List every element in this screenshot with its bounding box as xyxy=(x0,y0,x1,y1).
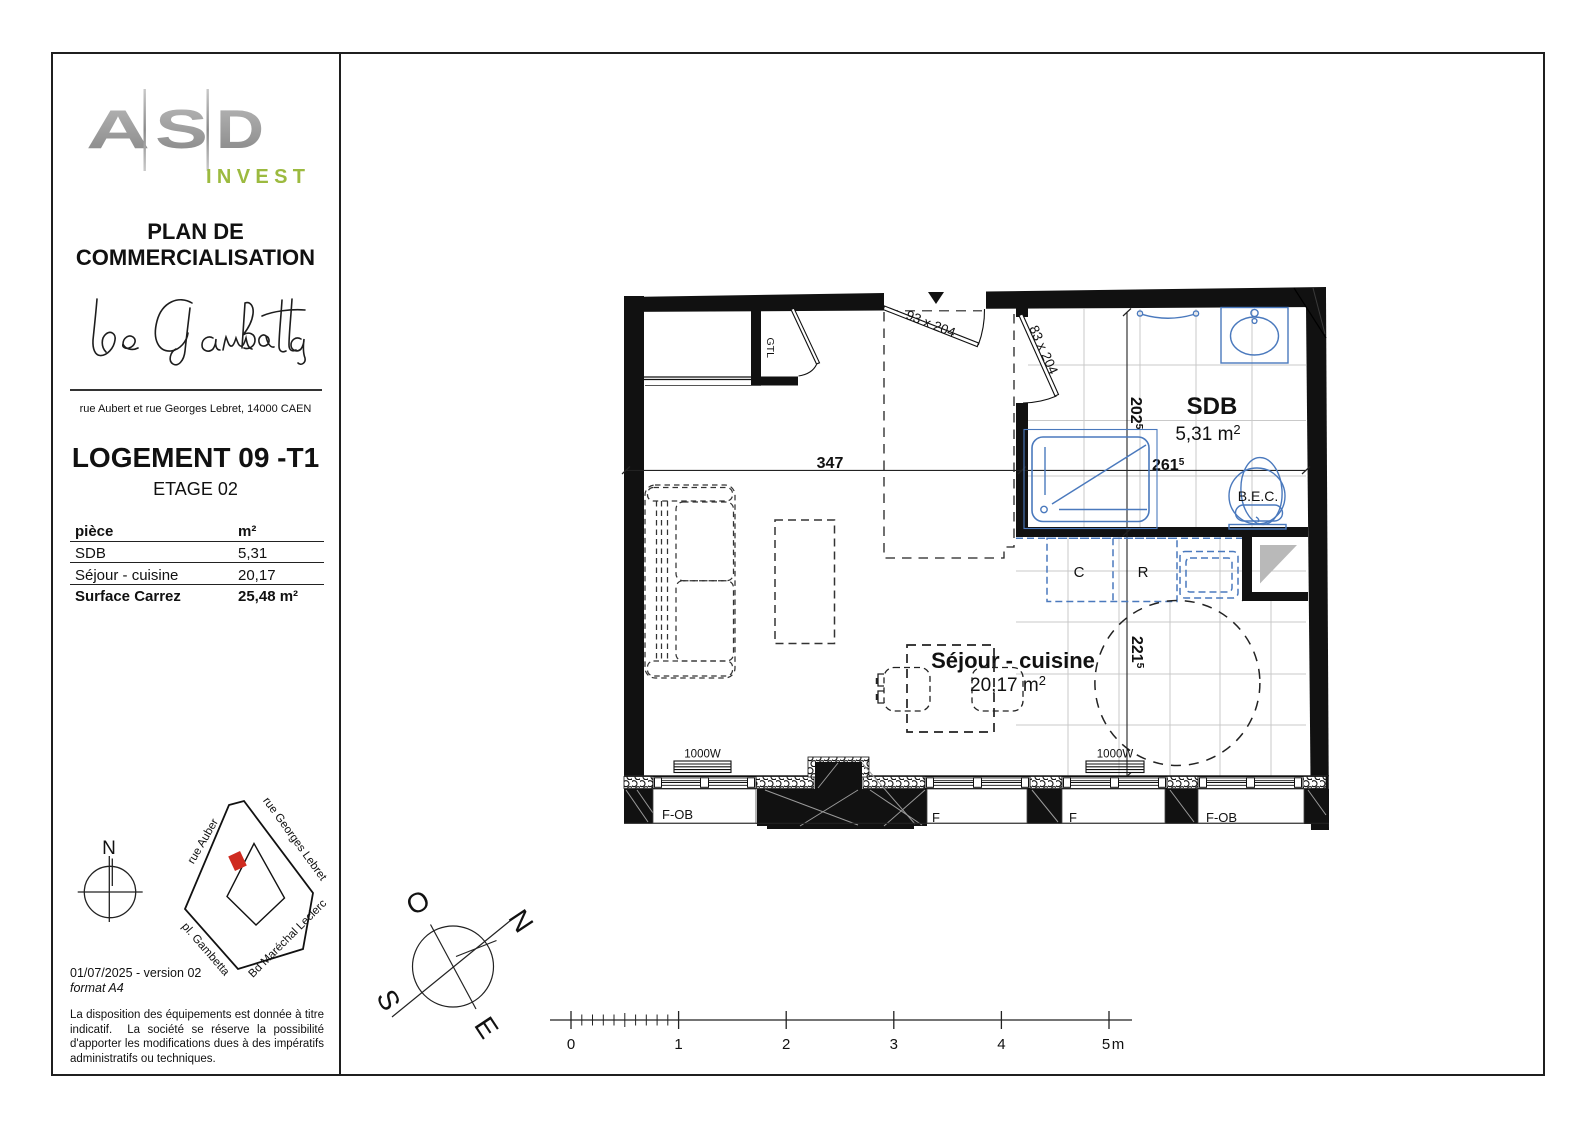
svg-text:3: 3 xyxy=(890,1036,898,1053)
svg-text:0: 0 xyxy=(567,1036,575,1053)
svg-text:1000W: 1000W xyxy=(1097,749,1134,761)
svg-text:20,17 m2: 20,17 m2 xyxy=(970,673,1046,696)
svg-text:1: 1 xyxy=(674,1036,682,1053)
svg-text:F-OB: F-OB xyxy=(1206,810,1237,825)
svg-text:C: C xyxy=(1074,564,1085,581)
svg-text:2215: 2215 xyxy=(1128,636,1145,669)
svg-text:B.E.C.: B.E.C. xyxy=(1238,488,1278,504)
svg-text:5,31 m2: 5,31 m2 xyxy=(1175,422,1240,445)
svg-text:GTL: GTL xyxy=(764,338,776,359)
svg-text:2: 2 xyxy=(782,1036,790,1053)
svg-text:4: 4 xyxy=(997,1036,1005,1053)
svg-text:SDB: SDB xyxy=(1187,393,1238,420)
svg-text:O: O xyxy=(401,884,435,922)
svg-text:5: 5 xyxy=(1102,1036,1110,1053)
svg-text:Séjour - cuisine: Séjour - cuisine xyxy=(931,648,1095,673)
svg-text:S: S xyxy=(370,985,406,1016)
svg-text:F: F xyxy=(932,810,940,825)
svg-text:2025: 2025 xyxy=(1127,397,1144,430)
svg-text:93 x 204: 93 x 204 xyxy=(904,307,958,340)
svg-text:N: N xyxy=(502,904,539,938)
svg-text:E: E xyxy=(468,1011,504,1044)
svg-text:1000W: 1000W xyxy=(684,749,721,761)
svg-text:m: m xyxy=(1112,1036,1125,1053)
svg-text:F-OB: F-OB xyxy=(662,807,693,822)
svg-text:347: 347 xyxy=(817,455,844,472)
svg-text:F: F xyxy=(1069,810,1077,825)
svg-text:R: R xyxy=(1138,564,1149,581)
